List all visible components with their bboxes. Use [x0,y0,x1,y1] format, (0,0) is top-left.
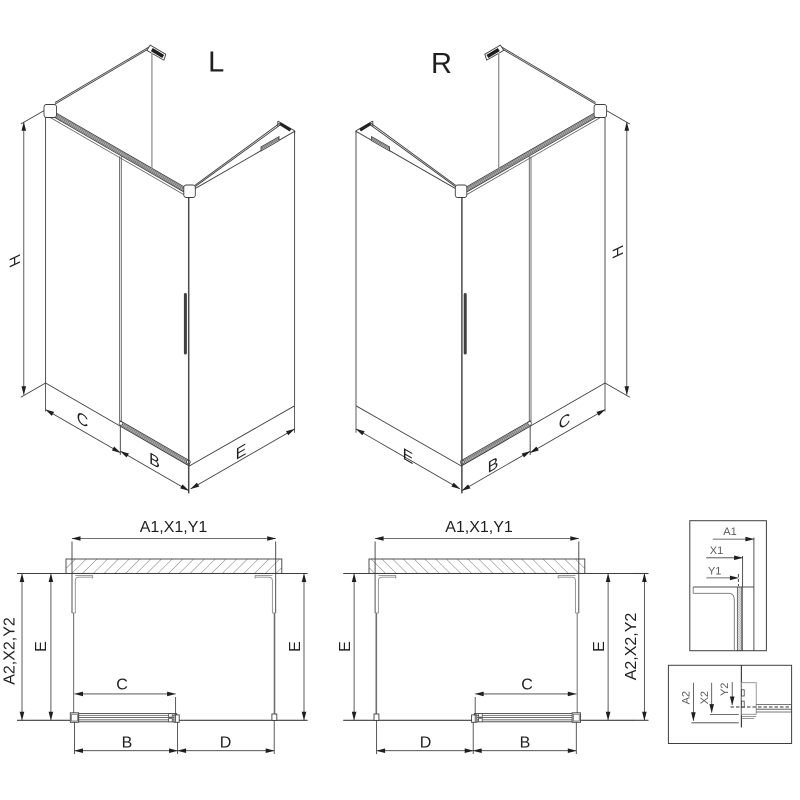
svg-text:E: E [337,641,354,652]
svg-text:E: E [33,641,50,652]
svg-text:Y1: Y1 [708,566,721,578]
svg-text:C: C [116,677,128,694]
svg-text:R: R [431,48,452,80]
svg-text:B: B [488,452,499,477]
svg-text:A1: A1 [723,526,736,538]
svg-text:Y2: Y2 [719,683,731,696]
svg-text:B: B [122,735,133,752]
svg-text:E: E [287,641,304,652]
svg-text:C: C [559,408,571,433]
svg-text:L: L [208,47,224,79]
svg-text:B: B [520,735,531,752]
svg-text:A2,X2,Y2: A2,X2,Y2 [623,613,640,681]
svg-text:X1: X1 [710,545,723,557]
svg-text:D: D [220,735,232,752]
svg-text:D: D [420,735,432,752]
svg-text:C: C [521,677,533,694]
svg-text:E: E [403,444,414,469]
svg-text:A1,X1,Y1: A1,X1,Y1 [140,519,208,536]
svg-text:E: E [236,439,247,464]
svg-text:A2,X2,Y2: A2,X2,Y2 [2,617,19,685]
svg-text:E: E [591,641,608,652]
svg-text:X2: X2 [699,691,711,704]
svg-text:A2: A2 [681,691,693,704]
svg-text:A1,X1,Y1: A1,X1,Y1 [445,519,513,536]
svg-text:H: H [611,242,627,260]
svg-text:H: H [8,251,24,269]
